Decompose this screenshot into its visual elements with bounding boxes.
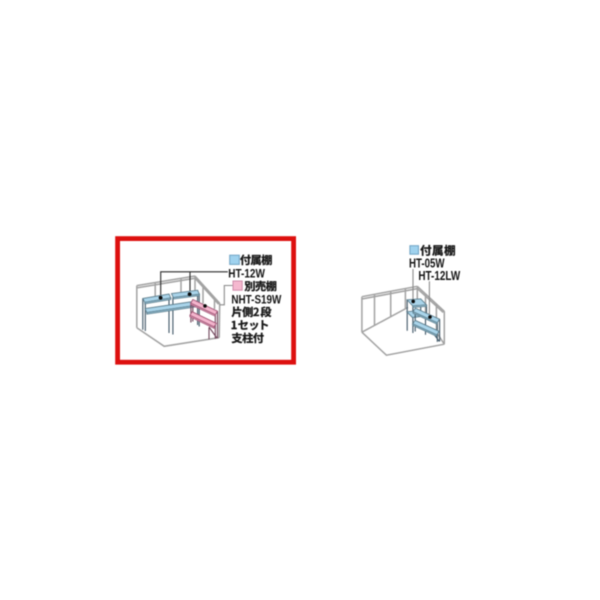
svg-text:HT-05W: HT-05W	[409, 256, 445, 270]
svg-text:NHT-S19W: NHT-S19W	[231, 292, 281, 306]
svg-text:HT-12LW: HT-12LW	[418, 269, 460, 283]
svg-text:HT-12W: HT-12W	[228, 267, 265, 281]
